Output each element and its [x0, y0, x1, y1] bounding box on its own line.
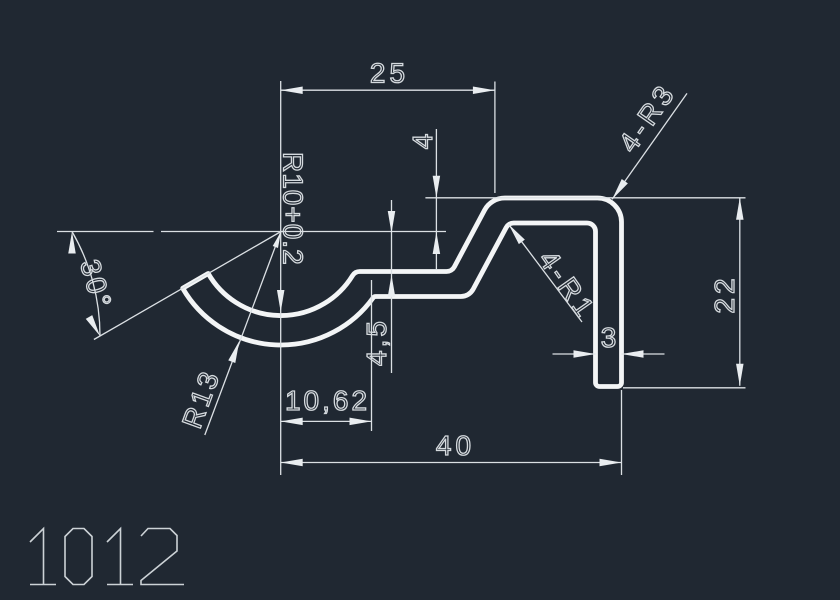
svg-text:4: 4: [407, 131, 438, 150]
svg-text:10,62: 10,62: [285, 385, 370, 416]
svg-text:25: 25: [370, 58, 409, 89]
svg-text:40: 40: [436, 430, 475, 461]
svg-text:4,5: 4,5: [361, 318, 392, 366]
svg-text:3: 3: [601, 322, 620, 353]
svg-text:22: 22: [709, 274, 740, 313]
svg-text:R10+0.2: R10+0.2: [278, 152, 309, 266]
